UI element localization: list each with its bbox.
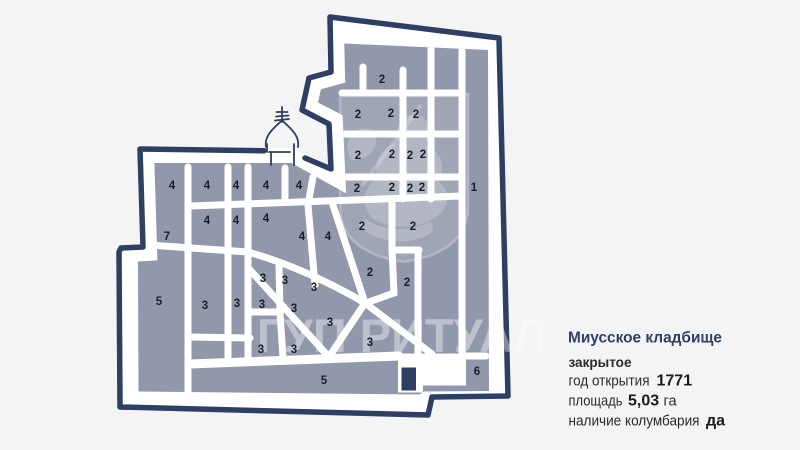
- svg-text:1771: 1771: [657, 373, 693, 390]
- svg-text:5: 5: [321, 375, 328, 387]
- svg-text:3: 3: [291, 303, 297, 315]
- svg-text:4: 4: [325, 231, 332, 243]
- svg-text:2: 2: [407, 150, 413, 162]
- svg-text:2: 2: [410, 221, 416, 233]
- svg-text:2: 2: [404, 277, 410, 289]
- svg-text:3: 3: [202, 300, 208, 312]
- svg-text:3: 3: [260, 273, 266, 285]
- svg-text:2: 2: [389, 182, 395, 194]
- svg-text:3: 3: [282, 275, 288, 287]
- svg-text:Миусское кладбище: Миусское кладбище: [568, 330, 722, 347]
- svg-text:4: 4: [169, 180, 176, 192]
- svg-text:закрытое: закрытое: [569, 354, 632, 370]
- svg-text:3: 3: [291, 344, 297, 356]
- svg-text:4: 4: [263, 180, 270, 192]
- svg-text:3: 3: [258, 344, 264, 356]
- svg-text:5,03: 5,03: [628, 392, 659, 409]
- svg-text:га: га: [664, 393, 678, 409]
- svg-text:6: 6: [474, 366, 480, 378]
- svg-text:3: 3: [367, 337, 373, 349]
- svg-text:5: 5: [156, 296, 163, 308]
- svg-text:3: 3: [234, 298, 240, 310]
- svg-text:4: 4: [296, 180, 303, 192]
- svg-text:2: 2: [419, 182, 425, 194]
- svg-text:площадь: площадь: [569, 393, 623, 409]
- svg-text:1: 1: [471, 182, 478, 194]
- svg-text:2: 2: [354, 183, 360, 195]
- svg-text:2: 2: [379, 74, 385, 86]
- svg-text:4: 4: [233, 180, 240, 192]
- svg-text:3: 3: [311, 282, 317, 294]
- svg-text:4: 4: [204, 215, 211, 227]
- svg-text:2: 2: [407, 183, 413, 195]
- svg-text:да: да: [706, 413, 725, 430]
- svg-text:2: 2: [359, 221, 365, 233]
- svg-text:4: 4: [233, 215, 240, 227]
- svg-text:наличие колумбария: наличие колумбария: [569, 414, 700, 430]
- svg-text:2: 2: [389, 149, 395, 161]
- svg-text:3: 3: [259, 299, 265, 311]
- svg-text:2: 2: [367, 267, 373, 279]
- svg-text:7: 7: [164, 231, 170, 243]
- svg-text:4: 4: [204, 180, 211, 192]
- svg-text:2: 2: [420, 149, 426, 161]
- svg-text:4: 4: [263, 213, 270, 225]
- svg-text:год открытия: год открытия: [569, 374, 650, 390]
- svg-text:3: 3: [327, 317, 333, 329]
- svg-text:2: 2: [355, 109, 361, 121]
- svg-text:2: 2: [413, 109, 419, 121]
- svg-text:4: 4: [299, 231, 306, 243]
- svg-text:2: 2: [355, 150, 361, 162]
- svg-text:2: 2: [388, 108, 394, 120]
